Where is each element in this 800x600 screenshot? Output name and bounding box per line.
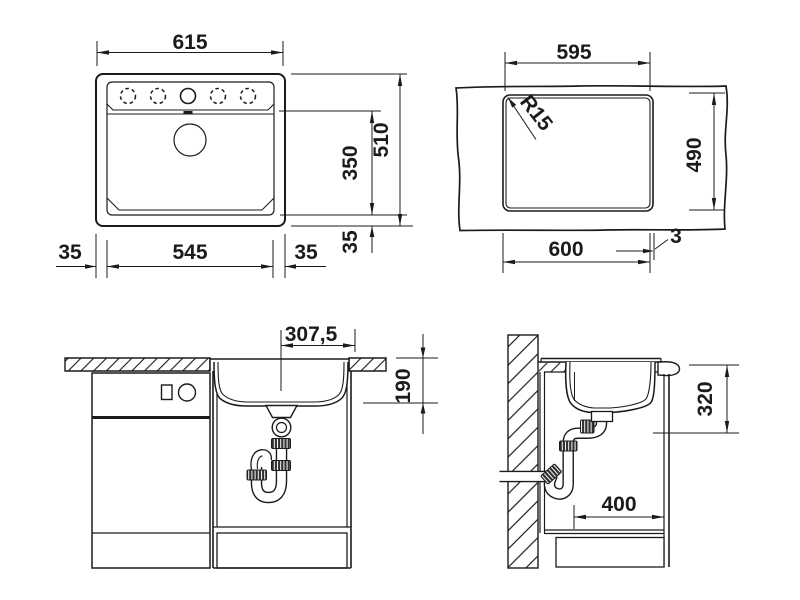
dim-label-clearance: 400: [601, 493, 636, 516]
dim-label-center-offset: 307,5: [285, 323, 338, 346]
dim-label-cut-width: 600: [548, 238, 583, 261]
arrow-right-icon: [85, 264, 96, 269]
counter-end-cap: [658, 362, 680, 376]
tap-hole-optional-icon: [241, 89, 256, 104]
dim-label-bowl-depth: 190: [392, 368, 415, 403]
union-nut: [247, 470, 267, 480]
extension-lines: [96, 41, 413, 278]
union-nut: [272, 461, 291, 471]
side-view: 320 400: [500, 335, 740, 568]
arrow-left-icon: [285, 264, 296, 269]
union-nut: [560, 441, 578, 451]
dim-label-install-depth: 320: [694, 381, 717, 416]
control-knob-icon: [179, 384, 196, 401]
counter-left-hatch: [65, 358, 210, 371]
drain-circle: [174, 124, 206, 156]
tap-hole-optional-icon: [121, 89, 136, 104]
trap-outlet-elbow: [251, 450, 271, 470]
ball-joint: [272, 418, 291, 437]
tap-hole-optional-icon: [151, 89, 166, 104]
plinth-panel: [556, 538, 664, 568]
union-nut: [272, 439, 291, 449]
dim-label-depth: 510: [370, 122, 393, 157]
left-cabinet: [92, 373, 210, 568]
front-view: 307,5 190: [65, 323, 438, 568]
dim-label-rim-bottom: 35: [339, 230, 362, 254]
tap-ledge-edge: [107, 104, 274, 110]
counter-right-hatch: [349, 358, 386, 371]
dim-label-rim-left: 35: [58, 241, 82, 264]
tap-hole-optional-icon: [211, 89, 226, 104]
bowl-bottom-chamfer: [107, 198, 274, 210]
control-panel-icon: [162, 385, 173, 400]
plinth-panel: [217, 533, 347, 568]
drain-fitting: [592, 412, 613, 422]
tap-hole-main-icon: [181, 89, 196, 104]
dim-label-cutout-height: 490: [683, 137, 706, 172]
siphon-front: [247, 406, 297, 498]
wall-hatch: [508, 335, 538, 568]
tap-holes: [121, 89, 256, 104]
arrow-up-icon: [370, 226, 375, 237]
cutout-view: 595 490 600 3 R15: [456, 41, 727, 273]
arrow-down-icon: [421, 348, 426, 359]
dim-label-edge-gap: 3: [670, 225, 682, 248]
overflow-slot: [184, 111, 193, 115]
technical-drawing: 615 350 510 35 545 35 35 595 490 600: [0, 0, 800, 600]
drain-flange: [266, 406, 297, 418]
dim-label-rim-right: 35: [294, 241, 318, 264]
dim-label-bowl-depth: 350: [339, 145, 362, 180]
dim-label-bowl-width: 545: [172, 241, 207, 264]
drawing-svg: 615 350 510 35 545 35 35 595 490 600: [0, 0, 800, 600]
edge-gap-leader: [655, 240, 668, 250]
dim-label-cutout-width: 595: [556, 41, 591, 64]
dim-label-width: 615: [172, 31, 207, 54]
counter-hatch: [539, 363, 565, 372]
top-view: 615 350 510 35 545 35 35: [56, 31, 413, 278]
bowl-side-outer: [566, 362, 655, 413]
sink-outer-outline: [96, 74, 285, 226]
cabinet-body: [92, 373, 210, 568]
arrow-right-icon: [643, 249, 654, 254]
arrow-up-icon: [421, 403, 426, 414]
